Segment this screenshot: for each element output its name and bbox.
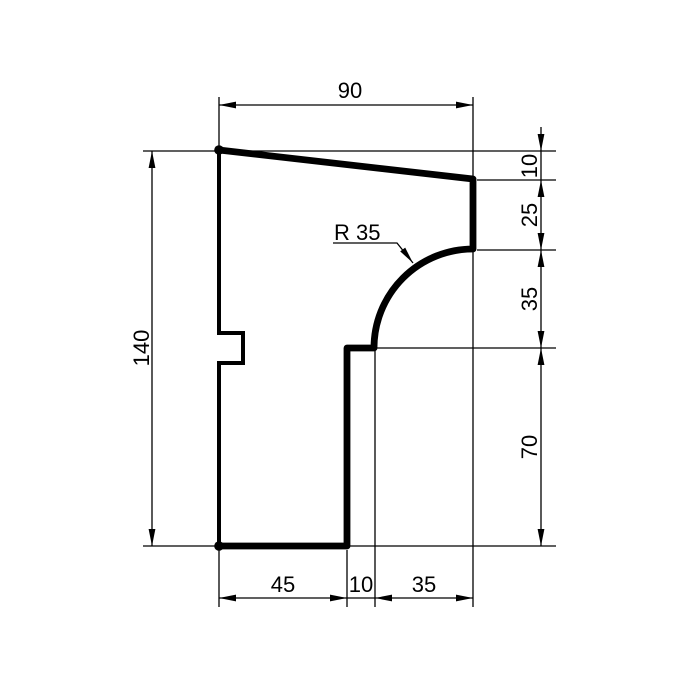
leader-line <box>333 243 413 263</box>
dimension-right-chain: 10 25 35 70 <box>377 127 556 546</box>
dim-label-bottom-left: 45 <box>271 572 295 597</box>
radius-label: R 35 <box>334 220 380 245</box>
profile-back-edge-with-notch <box>219 150 243 546</box>
dim-label-left-height: 140 <box>129 330 154 367</box>
dim-label-bottom-right: 35 <box>412 572 436 597</box>
drawing-page: 90 140 10 25 35 70 45 10 <box>0 0 686 686</box>
dimension-left-height: 140 <box>129 151 155 546</box>
profile-corner-dot-bottom <box>214 541 224 551</box>
dim-label-top-width: 90 <box>338 78 362 103</box>
radius-callout: R 35 <box>333 220 413 263</box>
dim-label-right-top: 10 <box>517 154 542 178</box>
dim-label-bottom-middle: 10 <box>349 572 373 597</box>
dim-label-right-upper: 25 <box>517 203 542 227</box>
dimension-top-width: 90 <box>219 78 473 151</box>
profile-drawing-canvas: 90 140 10 25 35 70 45 10 <box>0 0 686 686</box>
dim-label-right-middle: 35 <box>517 287 542 311</box>
dim-label-right-lower: 70 <box>517 435 542 459</box>
profile-corner-dot-top <box>214 145 224 155</box>
